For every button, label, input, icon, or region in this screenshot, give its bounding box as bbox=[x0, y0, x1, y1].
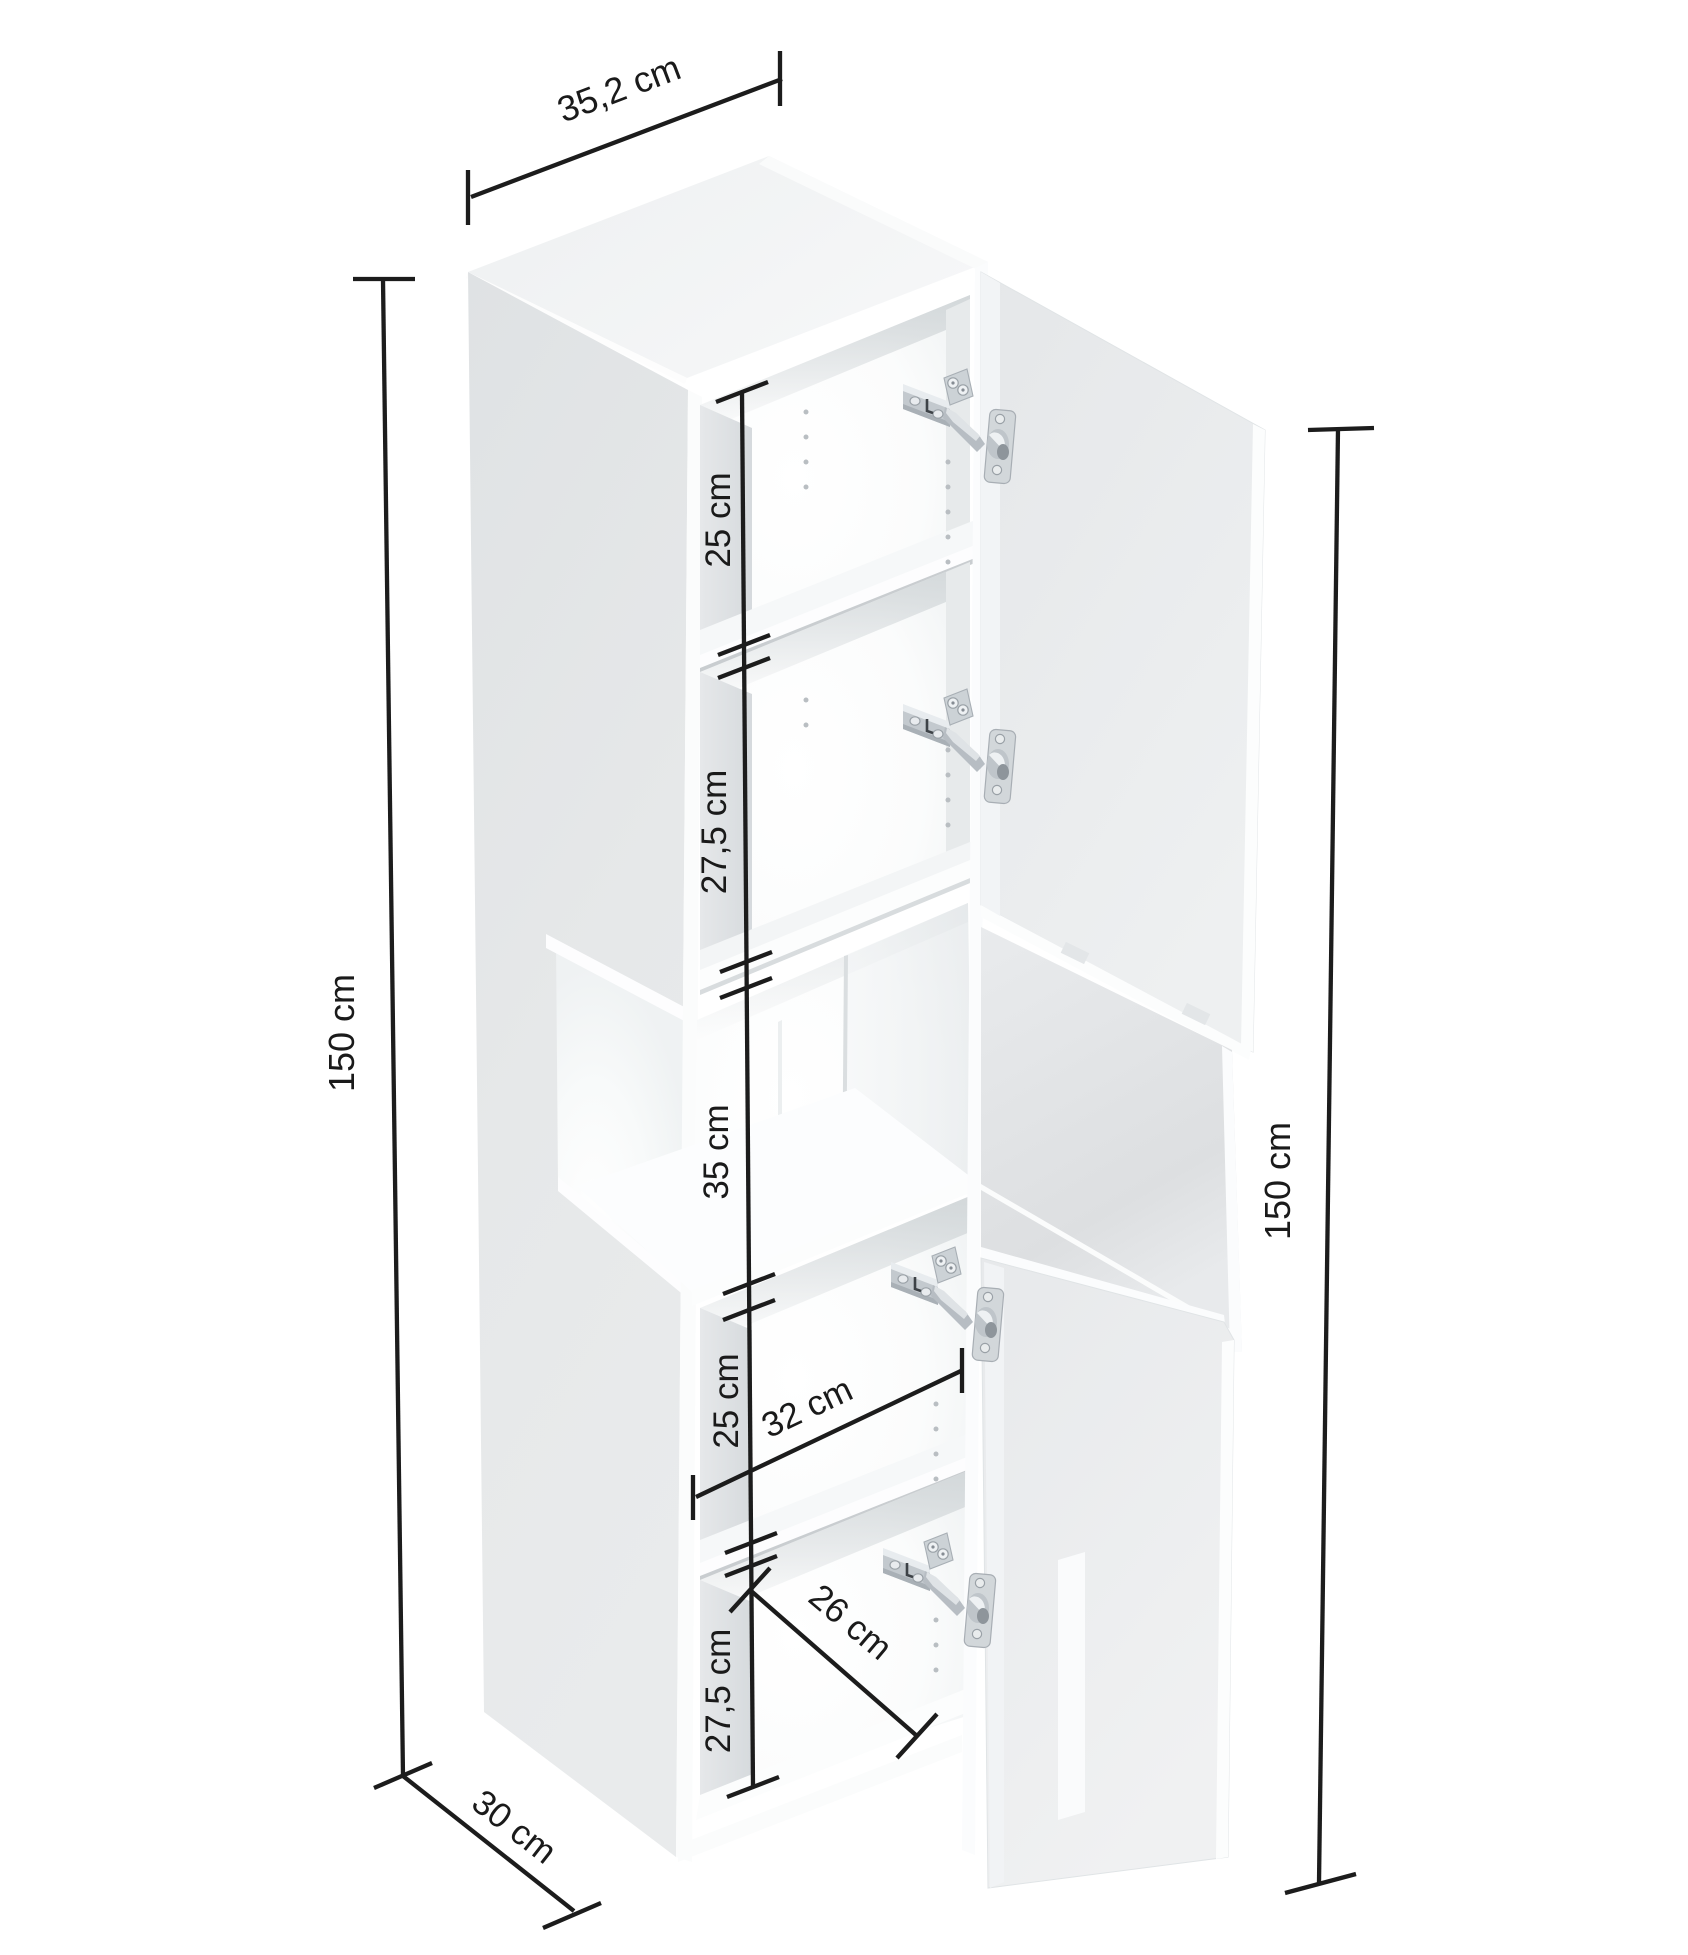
svg-text:25 cm: 25 cm bbox=[707, 1353, 746, 1448]
svg-text:35 cm: 35 cm bbox=[697, 1104, 736, 1199]
svg-text:150 cm: 150 cm bbox=[1257, 1122, 1298, 1240]
svg-text:27,5 cm: 27,5 cm bbox=[695, 770, 734, 895]
svg-text:150 cm: 150 cm bbox=[321, 974, 362, 1092]
svg-text:27,5 cm: 27,5 cm bbox=[699, 1629, 738, 1754]
svg-text:25 cm: 25 cm bbox=[699, 472, 738, 567]
